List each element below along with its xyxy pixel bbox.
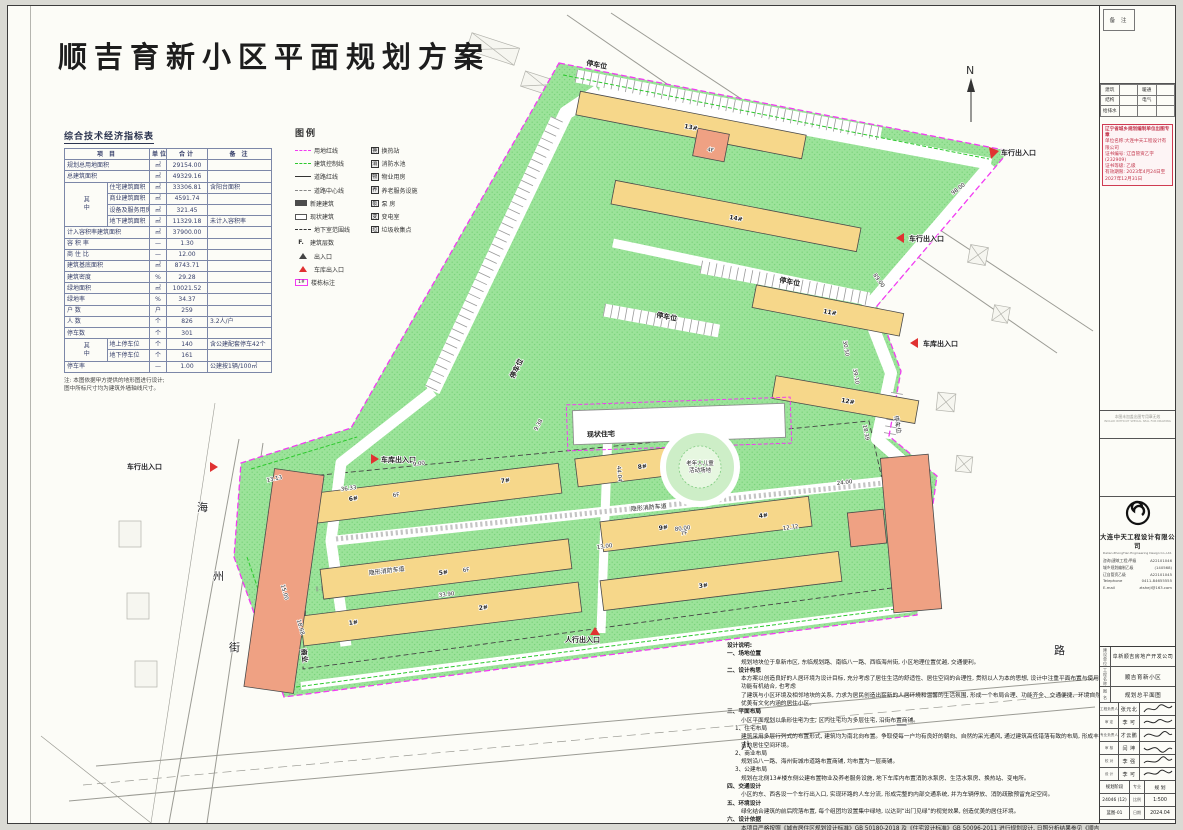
notes-text: 小区平面规划以条形住宅为主, 区内住宅均为多层住宅, 沿街布置商铺。	[741, 717, 1103, 725]
meta-row: 蓝图-01日期2024.04	[1100, 807, 1175, 820]
plan-label: 人行出入口	[565, 635, 600, 644]
owner-row: 建设单位 阜新顺吉房地产开发公司	[1100, 647, 1175, 667]
meta-row: 规划阶段专业规 划	[1100, 781, 1175, 794]
indicators-panel: 综合技术经济指标表 项 目单位合计备 注 规划总用地面积㎡29154.00 总建…	[64, 124, 272, 393]
activity-plaza	[663, 430, 737, 504]
building-number: 2#	[478, 604, 488, 612]
legend-title: 图例	[295, 126, 433, 139]
table-row: 计入容积率建筑面积㎡37900.00	[65, 227, 272, 238]
building-number: 5#	[438, 569, 448, 577]
project-name: 顺吉育新小区	[1111, 667, 1175, 686]
table-row: 其中住宅建筑面积㎡33306.81含阳台面积	[65, 182, 272, 193]
project-row: 工程名称 顺吉育新小区	[1100, 667, 1175, 687]
plan-label: 活动场地	[689, 466, 712, 474]
legend-item: 现状建筑	[295, 210, 371, 223]
title-block: 建设单位 阜新顺吉房地产开发公司 工程名称 顺吉育新小区 图 名 规划总平面图 …	[1100, 646, 1175, 823]
discipline-sign-table: 建筑暖通 结构电气 给排水	[1100, 84, 1175, 117]
notes-section: 四、交通设计	[727, 783, 1103, 791]
garbage-point-icon: 垃	[371, 226, 379, 234]
green-line-swatch	[295, 163, 311, 164]
person-row: 设 计李 可	[1100, 768, 1175, 781]
legend-item: 消消防水池	[371, 157, 433, 170]
notes-text: 规划在北侧13#楼东侧公建布置物业及养老服务设施, 地下车库内布置消防水泵房、生…	[741, 775, 1103, 783]
property-room-icon: 物	[371, 173, 379, 181]
plan-label: 车行出入口	[1001, 148, 1036, 157]
company-logo	[1125, 500, 1151, 526]
person-row: 工程负责人张元北	[1100, 703, 1175, 716]
company-name: 大连中天工程设计有限公司	[1100, 532, 1175, 550]
notes-text: 小区的东、西各设一个车行出入口, 实现环路的人车分流, 形成完整的内部交通系统,…	[741, 791, 1103, 799]
person-row: 审 核闫 坤	[1100, 742, 1175, 755]
legend-item: 变变电室	[371, 210, 433, 223]
table-row: 绿地面积㎡10021.52	[65, 283, 272, 294]
cert-line: E-mailztsheji@163.com	[1100, 585, 1175, 592]
elderly-service-icon: 养	[371, 186, 379, 194]
entrance-triangle-icon	[299, 253, 307, 259]
legend-item: 垃垃圾收集点	[371, 223, 433, 236]
legend-item: 用地红线	[295, 144, 371, 157]
col-header: 单位	[150, 149, 167, 160]
sheet-sidebar: 备 注 建筑暖通 结构电气 给排水 辽宁省城乡规划编制单位出图专章 单位名称:大…	[1099, 6, 1175, 823]
person-row: 专业负责人才云鹏	[1100, 729, 1175, 742]
cert-line: Telephone0411-84655555	[1100, 578, 1175, 585]
table-row: 总建筑面积㎡49329.16	[65, 171, 272, 182]
legend-item: 车库出入口	[295, 263, 371, 276]
legend-item: 换换热站	[371, 144, 433, 157]
drawing-sheet: 停车位 停车位 停车位 停车位 停车位 车行出入口 车行出入口 车库出入口 车库…	[7, 5, 1176, 824]
notes-section: 六、设计依据	[727, 816, 1103, 824]
plan-label: 车库出入口	[381, 455, 416, 464]
col-header: 备 注	[208, 149, 272, 160]
existing-building-swatch	[295, 214, 307, 220]
page-title: 顺吉育新小区平面规划方案	[58, 34, 490, 76]
building-number: 8#	[637, 463, 647, 471]
divider	[1100, 438, 1175, 439]
floor-count: 6F	[463, 567, 470, 574]
north-arrow: N	[954, 62, 988, 126]
notes-text: 本方案以创造良好的人居环境为设计目标, 充分考虑了居住生活的舒适性、居住空间的合…	[741, 675, 1103, 692]
person-row: 校 对李 强	[1100, 755, 1175, 768]
table-row: 人 数个8263.2人/户	[65, 316, 272, 327]
legend-line-items: 用地红线 建筑控制线 道路红线 道路中心线 新建建筑 现状建筑 地下室范围线 F…	[295, 144, 371, 289]
fine-print: 本图未加盖出图专用章无效 INVALID WITHOUT SPECIAL SEA…	[1102, 414, 1173, 423]
seal-line: 单位名称:大连中天工程设计有限公司	[1105, 139, 1170, 151]
building-number: 7#	[500, 477, 510, 485]
pump-room-icon: 泵	[371, 200, 379, 208]
centerline-swatch	[295, 190, 311, 191]
cert-line: 城乡规划编制乙级(140568)	[1100, 565, 1175, 572]
notes-text: 规划地块位于阜新市区, 东临规划路、南临八一路、西临海州街, 小区地理位置优越,…	[741, 659, 1103, 667]
table-footnotes: 注: 本图依据甲方提供的地形图进行设计; 图中所标尺寸均为建筑外墙轴线尺寸。	[64, 377, 272, 393]
person-row: 审 定李 可	[1100, 716, 1175, 729]
signature	[1140, 768, 1175, 780]
table-row: 绿地率%34.37	[65, 294, 272, 305]
indicators-table: 项 目单位合计备 注 规划总用地面积㎡29154.00 总建筑面积㎡49329.…	[64, 148, 272, 373]
drawing-title: 规划总平面图	[1111, 687, 1175, 702]
meta-row: 24046 (12)比例1:500	[1100, 794, 1175, 807]
footnote: 图中所标尺寸均为建筑外墙轴线尺寸。	[64, 385, 272, 393]
table-row: 户 数户259	[65, 305, 272, 316]
signature	[1140, 742, 1175, 754]
building-number-box: 1#	[295, 279, 308, 286]
legend-item: 道路中心线	[295, 184, 371, 197]
table-row: 商 住 比—12.00	[65, 249, 272, 260]
legend-item: F.建筑层数	[295, 236, 371, 249]
floor-count-symbol: F.	[295, 239, 307, 246]
new-building-swatch	[295, 200, 307, 206]
floor-count: 4F	[707, 147, 715, 154]
cert-line: 辽自管资乙级A22101045	[1100, 572, 1175, 579]
building-number: 1#	[348, 619, 358, 627]
legend-item: 地下室范围线	[295, 223, 371, 236]
signature	[1140, 729, 1175, 741]
notes-subsection: 3、公建布局	[735, 766, 1103, 774]
col-header: 合计	[167, 149, 208, 160]
red-line-swatch	[295, 150, 311, 151]
legend-item: 物物业用房	[371, 170, 433, 183]
building-number: 3#	[698, 582, 708, 590]
legend-item: 建筑控制线	[295, 157, 371, 170]
drawing-title-row: 图 名 规划总平面图	[1100, 687, 1175, 703]
col-header: 项 目	[65, 149, 150, 160]
building-number: 9#	[658, 524, 668, 532]
design-notes: 设计说明: 一、场地位置 规划地块位于阜新市区, 东临规划路、南临八一路、西临海…	[727, 642, 1103, 830]
table-row: 容 积 率—1.30	[65, 238, 272, 249]
table-row: 建筑密度%29.28	[65, 272, 272, 283]
plan-label: 老年人儿童	[686, 459, 714, 467]
legend-item: 1#楼栋标注	[295, 276, 371, 289]
divider	[1100, 496, 1175, 497]
street-name-char: 州	[213, 570, 226, 583]
basement-line-swatch	[295, 229, 311, 230]
table-row: 其中地上停车位个140含公建配套停车42个	[65, 339, 272, 350]
table-row: 停车率—1.00公建按1辆/100㎡	[65, 361, 272, 372]
signature	[1140, 755, 1175, 767]
footnote: 注: 本图依据甲方提供的地形图进行设计;	[64, 377, 272, 385]
legend-item: 泵泵 房	[371, 197, 433, 210]
fire-pool-icon: 消	[371, 160, 379, 168]
notes-subsection: 1、住宅布局	[735, 725, 1103, 733]
legend-panel: 图例 用地红线 建筑控制线 道路红线 道路中心线 新建建筑 现状建筑 地下室范围…	[295, 126, 433, 289]
design-company-block: 大连中天工程设计有限公司 Dalian ZhongTian Engineerin…	[1100, 500, 1175, 592]
plan-label: 车行出入口	[127, 462, 162, 471]
legend-item: 出入口	[295, 250, 371, 263]
heat-station-icon: 换	[371, 147, 379, 155]
divider	[1100, 410, 1175, 411]
seal-line: 有效期限: 2023年4月24日至2027年12月31日	[1105, 170, 1170, 182]
street-name-char: 海	[197, 500, 210, 514]
legend-facility-items: 换换热站 消消防水池 物物业用房 养养老服务设施 泵泵 房 变变电室 垃垃圾收集…	[371, 144, 433, 289]
plan-label: 车行出入口	[909, 234, 944, 243]
notes-text: 绿化结合建筑的前后院落布置, 每个组团均设置集中绿地, 以达到“出门见绿”的视觉…	[741, 808, 1103, 816]
plan-label: 车库出入口	[923, 339, 958, 348]
indicators-title: 综合技术经济指标表	[64, 129, 154, 144]
planning-seal-box: 辽宁省城乡规划编制单位出图专章 单位名称:大连中天工程设计有限公司 证书编号: …	[1102, 124, 1173, 186]
legend-item: 新建建筑	[295, 197, 371, 210]
notes-heading: 设计说明:	[727, 642, 1103, 650]
company-name-en: Dalian ZhongTian Engineering Design Co.,…	[1100, 551, 1175, 555]
floor-count: 6F	[393, 492, 400, 499]
notes-text: 了建筑与小区环境及相邻地块的关系, 力求为居民创造出崭新的人居环境和温馨的生活氛…	[741, 692, 1103, 709]
notes-section: 一、场地位置	[727, 650, 1103, 658]
table-row: 建筑基底面积㎡8743.71	[65, 260, 272, 271]
seal-line: 辽宁省城乡规划编制单位出图专章	[1105, 127, 1170, 139]
notes-section: 五、环境设计	[727, 800, 1103, 808]
remark-box: 备 注	[1103, 9, 1135, 31]
table-row: 停车数个301	[65, 328, 272, 339]
garage-entrance-triangle-icon	[299, 266, 307, 272]
notes-subsection: 2、商业布局	[735, 750, 1103, 758]
legend-item: 养养老服务设施	[371, 184, 433, 197]
signature	[1140, 703, 1175, 715]
notes-section: 二、设计构思	[727, 667, 1103, 675]
signature	[1140, 716, 1175, 728]
building-number: 6#	[348, 495, 358, 503]
table-row: 规划总用地面积㎡29154.00	[65, 160, 272, 171]
owner-name: 阜新顺吉房地产开发公司	[1111, 647, 1175, 666]
seal-line: 证书编号: 辽自管资乙字(232909)	[1105, 152, 1170, 164]
notes-text: 规划沿八一路、海州街城市道路布置商铺, 均布置为一层商铺。	[741, 758, 1103, 766]
notes-text: 建筑采用多层行列式的布置形式, 建筑均为南北向布置。争取使每一户均有良好的朝向、…	[741, 733, 1103, 750]
notes-text: 本项目严格按照《城市居住区规划设计标准》GB 50180-2018 及《住宅设计…	[741, 825, 1103, 830]
notes-section: 三、平面布局	[727, 708, 1103, 716]
plan-label: 现状住宅	[587, 429, 615, 439]
building-number: 4#	[758, 512, 768, 520]
legend-item: 道路红线	[295, 170, 371, 183]
north-label: N	[966, 64, 974, 77]
solid-line-swatch	[295, 176, 311, 177]
substation-icon: 变	[371, 213, 379, 221]
cert-line: 咨询(建筑工程)甲级A22101046	[1100, 558, 1175, 565]
street-name-char: 街	[229, 640, 242, 654]
